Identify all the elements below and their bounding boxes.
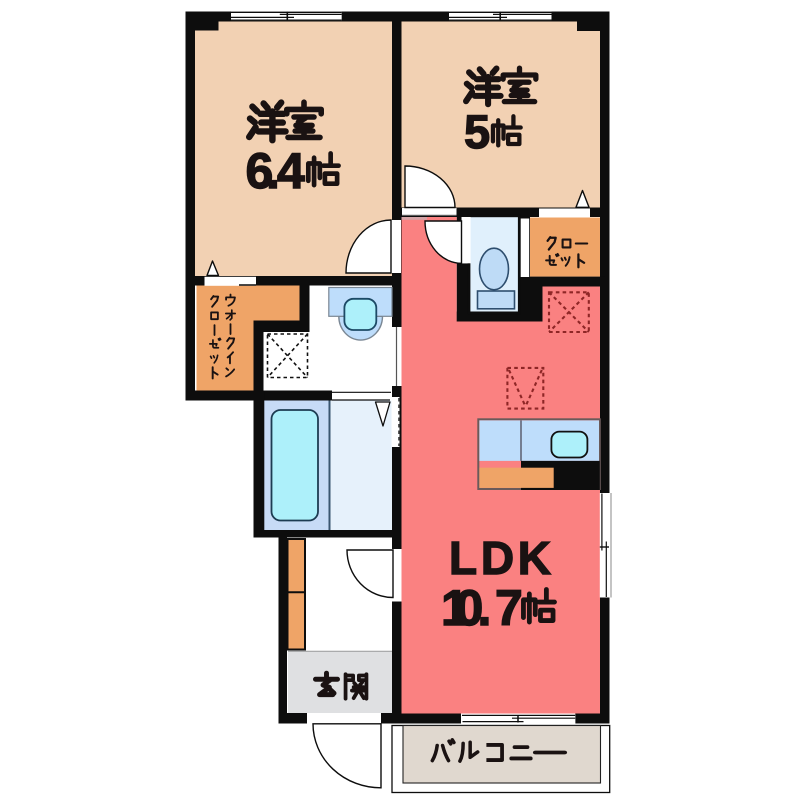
svg-text:5: 5 — [464, 105, 490, 158]
svg-text:LDK: LDK — [449, 532, 551, 584]
svg-text:.: . — [478, 580, 492, 636]
svg-text:7: 7 — [495, 580, 523, 636]
svg-text:4: 4 — [277, 143, 305, 199]
